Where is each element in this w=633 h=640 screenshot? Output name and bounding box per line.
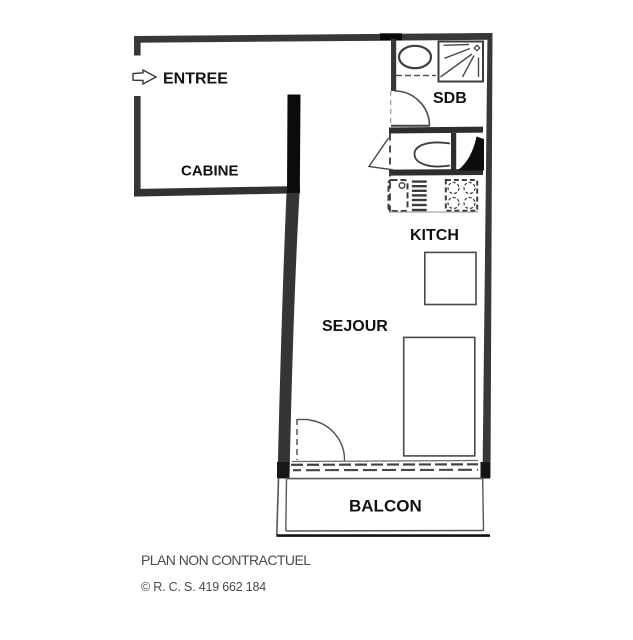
svg-text:PLAN NON CONTRACTUEL: PLAN NON CONTRACTUEL xyxy=(141,552,311,568)
svg-text:© R. C. S. 419 662 184: © R. C. S. 419 662 184 xyxy=(141,580,266,594)
svg-text:SDB: SDB xyxy=(433,90,467,107)
svg-text:BALCON: BALCON xyxy=(349,497,422,516)
svg-text:KITCH: KITCH xyxy=(410,227,459,244)
svg-text:ENTREE: ENTREE xyxy=(163,71,228,88)
svg-text:SEJOUR: SEJOUR xyxy=(322,318,388,335)
svg-text:CABINE: CABINE xyxy=(181,163,239,180)
